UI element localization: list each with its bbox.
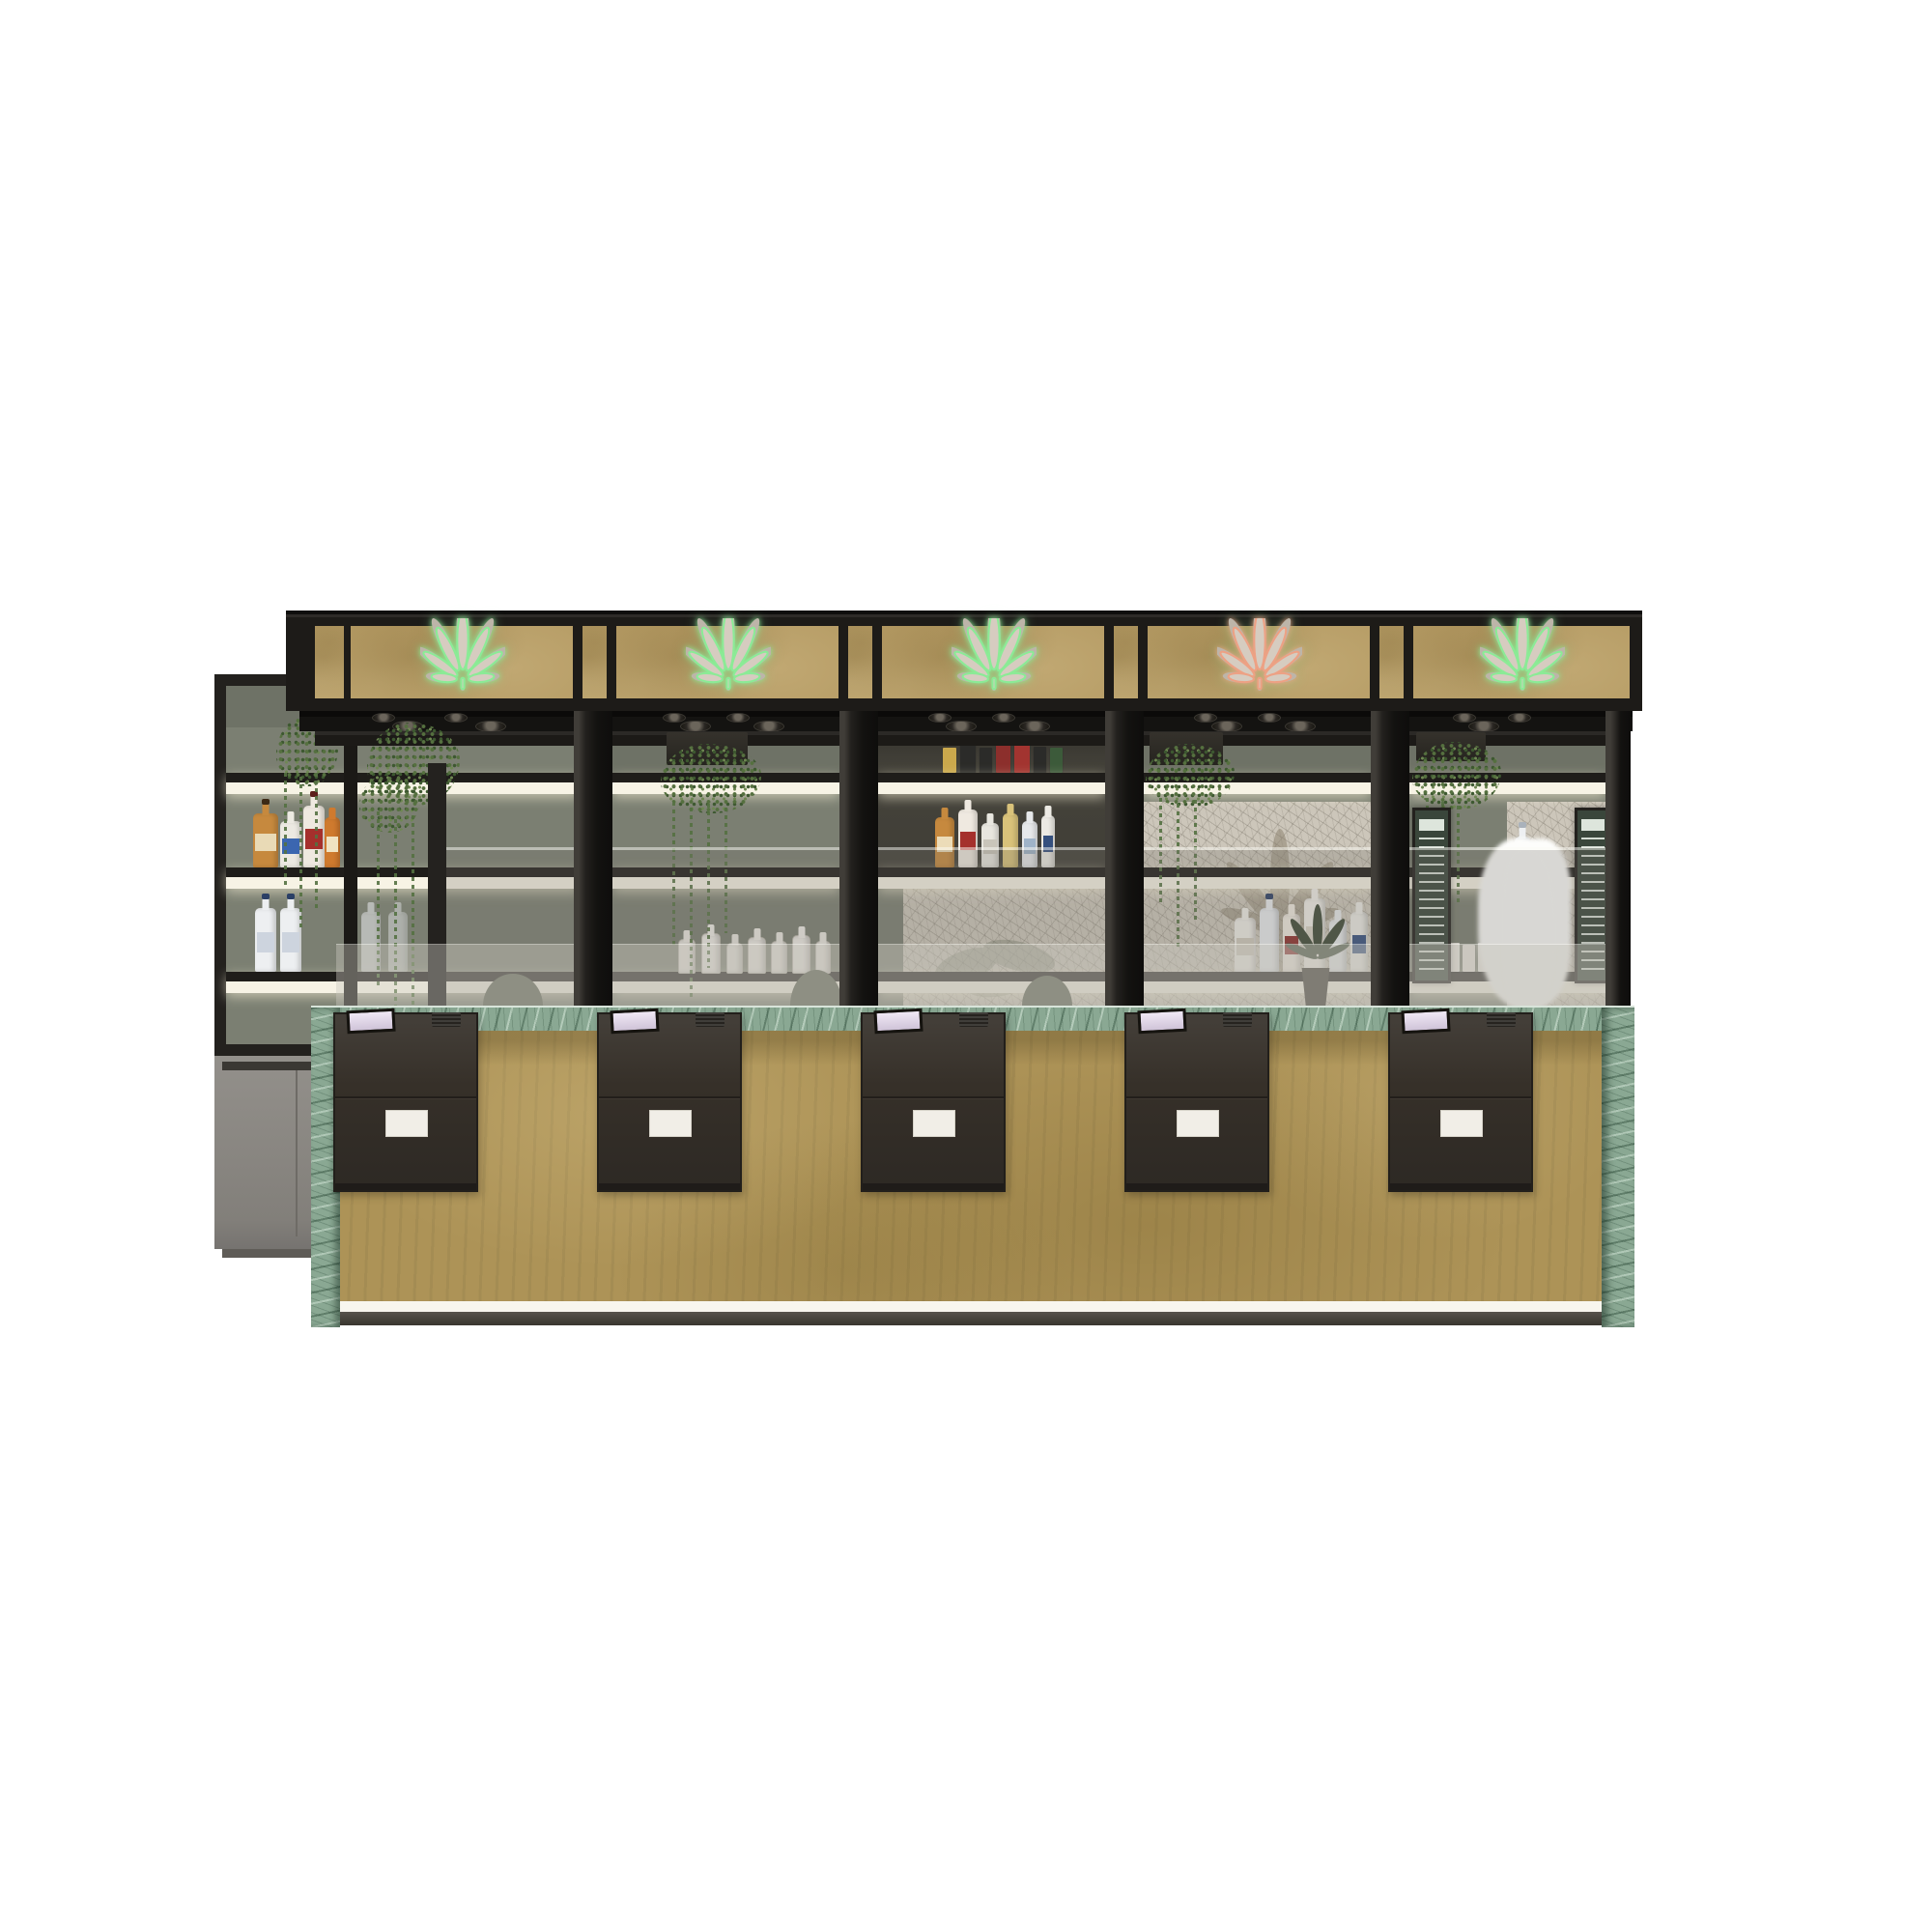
frame-column — [1105, 711, 1144, 1011]
frame-column — [1371, 711, 1409, 1011]
cannabis-leaf-neon-sign — [1217, 618, 1302, 707]
counter-reveal — [340, 1301, 1602, 1312]
receipt-printer — [1487, 1012, 1516, 1027]
header-panel — [582, 626, 607, 698]
panel-seam — [1390, 1096, 1531, 1098]
downlight-icon — [992, 713, 1015, 723]
pos-register — [333, 1012, 478, 1192]
pos-screen — [873, 1009, 923, 1035]
panel-seam — [335, 1096, 476, 1098]
product-box — [980, 748, 992, 773]
register-plate — [1440, 1110, 1483, 1137]
downlight-icon — [372, 713, 395, 723]
receipt-printer — [1223, 1012, 1252, 1027]
receipt-printer — [959, 1012, 988, 1027]
cannabis-leaf-neon-sign — [686, 618, 771, 707]
frame-column — [1605, 711, 1631, 1011]
bar-elevation-render — [0, 0, 1932, 1932]
downlight-icon — [726, 713, 750, 723]
header-panel — [315, 626, 344, 698]
panel-seam — [1126, 1096, 1267, 1098]
header-panel — [848, 626, 872, 698]
downlight-icon — [1453, 713, 1476, 723]
vine-strand — [315, 773, 318, 908]
pos-screen — [1137, 1009, 1186, 1035]
glass-panel-lower — [1409, 945, 1605, 1008]
counter-end-panel — [1602, 1008, 1634, 1327]
glass-panel-lower — [336, 945, 574, 1008]
pos-register — [1388, 1012, 1533, 1192]
panel-seam — [599, 1096, 740, 1098]
frame-column — [574, 711, 612, 1011]
vine-strand — [284, 773, 287, 889]
register-base — [863, 1183, 1004, 1190]
downlight-icon — [1508, 713, 1531, 723]
bottle — [280, 908, 301, 972]
cannabis-leaf-neon-sign — [952, 618, 1037, 707]
vine-strand — [299, 777, 302, 931]
register-base — [1390, 1183, 1531, 1190]
product-box — [1050, 748, 1063, 773]
pos-screen — [346, 1009, 395, 1035]
register-plate — [913, 1110, 955, 1137]
cannabis-leaf-neon-sign — [1480, 618, 1565, 707]
downlight-icon — [1194, 713, 1217, 723]
header-panel — [1379, 626, 1404, 698]
register-base — [335, 1183, 476, 1190]
pos-register — [597, 1012, 742, 1192]
bottle — [303, 806, 325, 867]
register-plate — [385, 1110, 428, 1137]
downlight-icon — [1258, 713, 1281, 723]
pos-screen — [610, 1009, 659, 1035]
receipt-printer — [696, 1012, 724, 1027]
pos-register — [861, 1012, 1006, 1192]
product-box — [1014, 742, 1030, 773]
downlight-icon — [928, 713, 952, 723]
bottle — [255, 908, 276, 972]
pos-register — [1124, 1012, 1269, 1192]
register-base — [599, 1183, 740, 1190]
frame-column — [839, 711, 878, 1011]
bottle — [325, 817, 340, 867]
header-panel — [1114, 626, 1138, 698]
register-base — [1126, 1183, 1267, 1190]
bottle — [253, 813, 278, 867]
receipt-printer — [432, 1012, 461, 1027]
bay-top-rail — [878, 731, 1105, 746]
product-box — [1034, 747, 1046, 773]
panel-seam — [863, 1096, 1004, 1098]
register-plate — [649, 1110, 692, 1137]
product-box — [960, 744, 976, 773]
cannabis-leaf-neon-sign — [420, 618, 505, 707]
pos-screen — [1401, 1009, 1450, 1035]
glass-panel-lower — [1144, 945, 1371, 1008]
counter-kick — [340, 1312, 1602, 1325]
product-box — [943, 748, 956, 773]
downlight-icon — [444, 713, 468, 723]
glass-panel-lower — [612, 945, 839, 1008]
cabinet-door-seam — [296, 1070, 298, 1236]
shelf-led-strip — [878, 773, 1105, 794]
downlight-icon — [663, 713, 686, 723]
product-box — [996, 745, 1010, 773]
glass-panel-lower — [878, 945, 1105, 1008]
register-plate — [1177, 1110, 1219, 1137]
